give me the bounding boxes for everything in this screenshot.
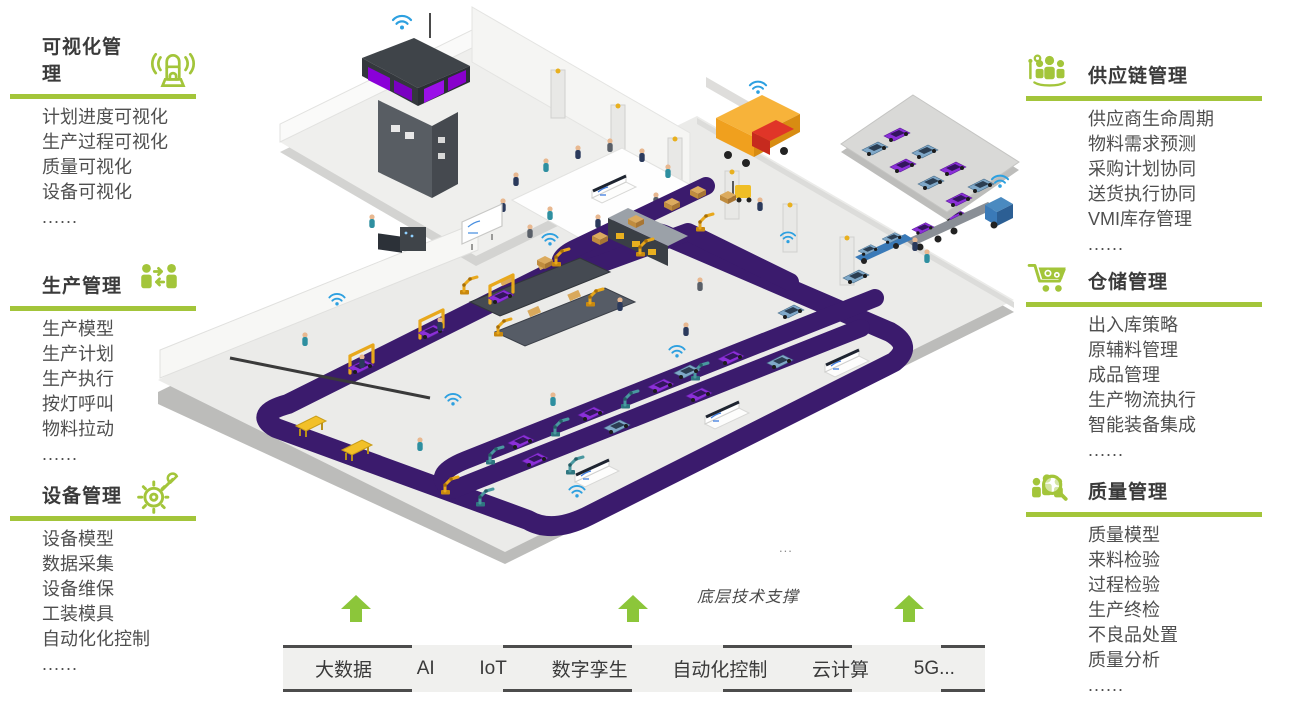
- list-item: VMI库存管理: [1088, 207, 1262, 232]
- list-item: 物料需求预测: [1088, 132, 1262, 157]
- section-quality-management: 质量管理 质量模型 来料检验 过程检验 生产终检 不良品处置 质量分析 ....…: [1026, 462, 1262, 698]
- list-item-ellipsis: ......: [1088, 438, 1262, 463]
- section-supply-chain-management: 供应链管理 供应商生命周期 物料需求预测 采购计划协同 送货执行协同 VMI库存…: [1026, 46, 1262, 257]
- technology-bar: 大数据 AI IoT 数字孪生 自动化控制 云计算 5G...: [283, 645, 985, 692]
- list-item: 出入库策略: [1088, 313, 1262, 338]
- section-warehouse-management: 仓储管理 出入库策略 原辅料管理 成品管理 生产物流执行 智能装备集成 ....…: [1026, 252, 1262, 463]
- section-title: 可视化管理: [42, 32, 136, 94]
- list-item: 不良品处置: [1088, 623, 1262, 648]
- tech-item-iot: IoT: [479, 658, 506, 680]
- list-item-ellipsis: ......: [1088, 673, 1262, 698]
- tech-item-ai: AI: [417, 658, 435, 680]
- section-title: 生产管理: [42, 271, 122, 306]
- section-items: 质量模型 来料检验 过程检验 生产终检 不良品处置 质量分析 ......: [1026, 523, 1262, 698]
- list-item: 送货执行协同: [1088, 182, 1262, 207]
- list-item: 过程检验: [1088, 573, 1262, 598]
- list-item: 智能装备集成: [1088, 413, 1262, 438]
- section-underline: [1026, 302, 1262, 307]
- supply-chain-people-icon: [1026, 50, 1072, 96]
- list-item: 生产终检: [1088, 598, 1262, 623]
- section-title: 供应链管理: [1088, 61, 1188, 96]
- list-item: 来料检验: [1088, 548, 1262, 573]
- tech-item-digital-twin: 数字孪生: [552, 655, 628, 682]
- section-title: 仓储管理: [1088, 267, 1168, 302]
- list-item: 采购计划协同: [1088, 157, 1262, 182]
- tech-item-cloud: 云计算: [812, 655, 869, 682]
- factory-illustration: [148, 5, 1028, 590]
- up-arrow-icon: [341, 595, 371, 622]
- up-arrow-icon: [894, 595, 924, 622]
- magnifier-people-icon: [1026, 466, 1072, 512]
- section-items: 供应商生命周期 物料需求预测 采购计划协同 送货执行协同 VMI库存管理 ...…: [1026, 107, 1262, 257]
- tech-item-bigdata: 大数据: [315, 655, 372, 682]
- tech-item-5g: 5G...: [914, 658, 955, 680]
- section-items: 出入库策略 原辅料管理 成品管理 生产物流执行 智能装备集成 ......: [1026, 313, 1262, 463]
- list-item: 工装模具: [42, 602, 196, 627]
- list-item: 生产物流执行: [1088, 388, 1262, 413]
- cart-gears-icon: [1026, 256, 1072, 302]
- section-head: 质量管理: [1026, 462, 1262, 512]
- section-head: 供应链管理: [1026, 46, 1262, 96]
- list-item: 成品管理: [1088, 363, 1262, 388]
- smart-factory-diagram: 可视化管理 计划进度可视化 生产过程可视化 质量可视化 设备可视化 .: [0, 0, 1300, 713]
- section-head: 仓储管理: [1026, 252, 1262, 302]
- up-arrow-icon: [618, 595, 648, 622]
- section-title: 设备管理: [42, 481, 122, 516]
- list-item: 质量分析: [1088, 648, 1262, 673]
- list-item: 自动化化控制: [42, 627, 196, 652]
- technology-items: 大数据 AI IoT 数字孪生 自动化控制 云计算 5G...: [283, 645, 985, 692]
- section-title: 质量管理: [1088, 477, 1168, 512]
- list-item: 供应商生命周期: [1088, 107, 1262, 132]
- section-underline: [1026, 512, 1262, 517]
- support-label: 底层技术支撑: [697, 583, 799, 607]
- list-item-ellipsis: ......: [42, 652, 196, 677]
- tech-item-automation-control: 自动化控制: [672, 655, 767, 682]
- list-item: 原辅料管理: [1088, 338, 1262, 363]
- parking-lot: [841, 95, 1019, 220]
- section-underline: [1026, 96, 1262, 101]
- list-item: 质量模型: [1088, 523, 1262, 548]
- mid-ellipsis: ...: [779, 540, 793, 555]
